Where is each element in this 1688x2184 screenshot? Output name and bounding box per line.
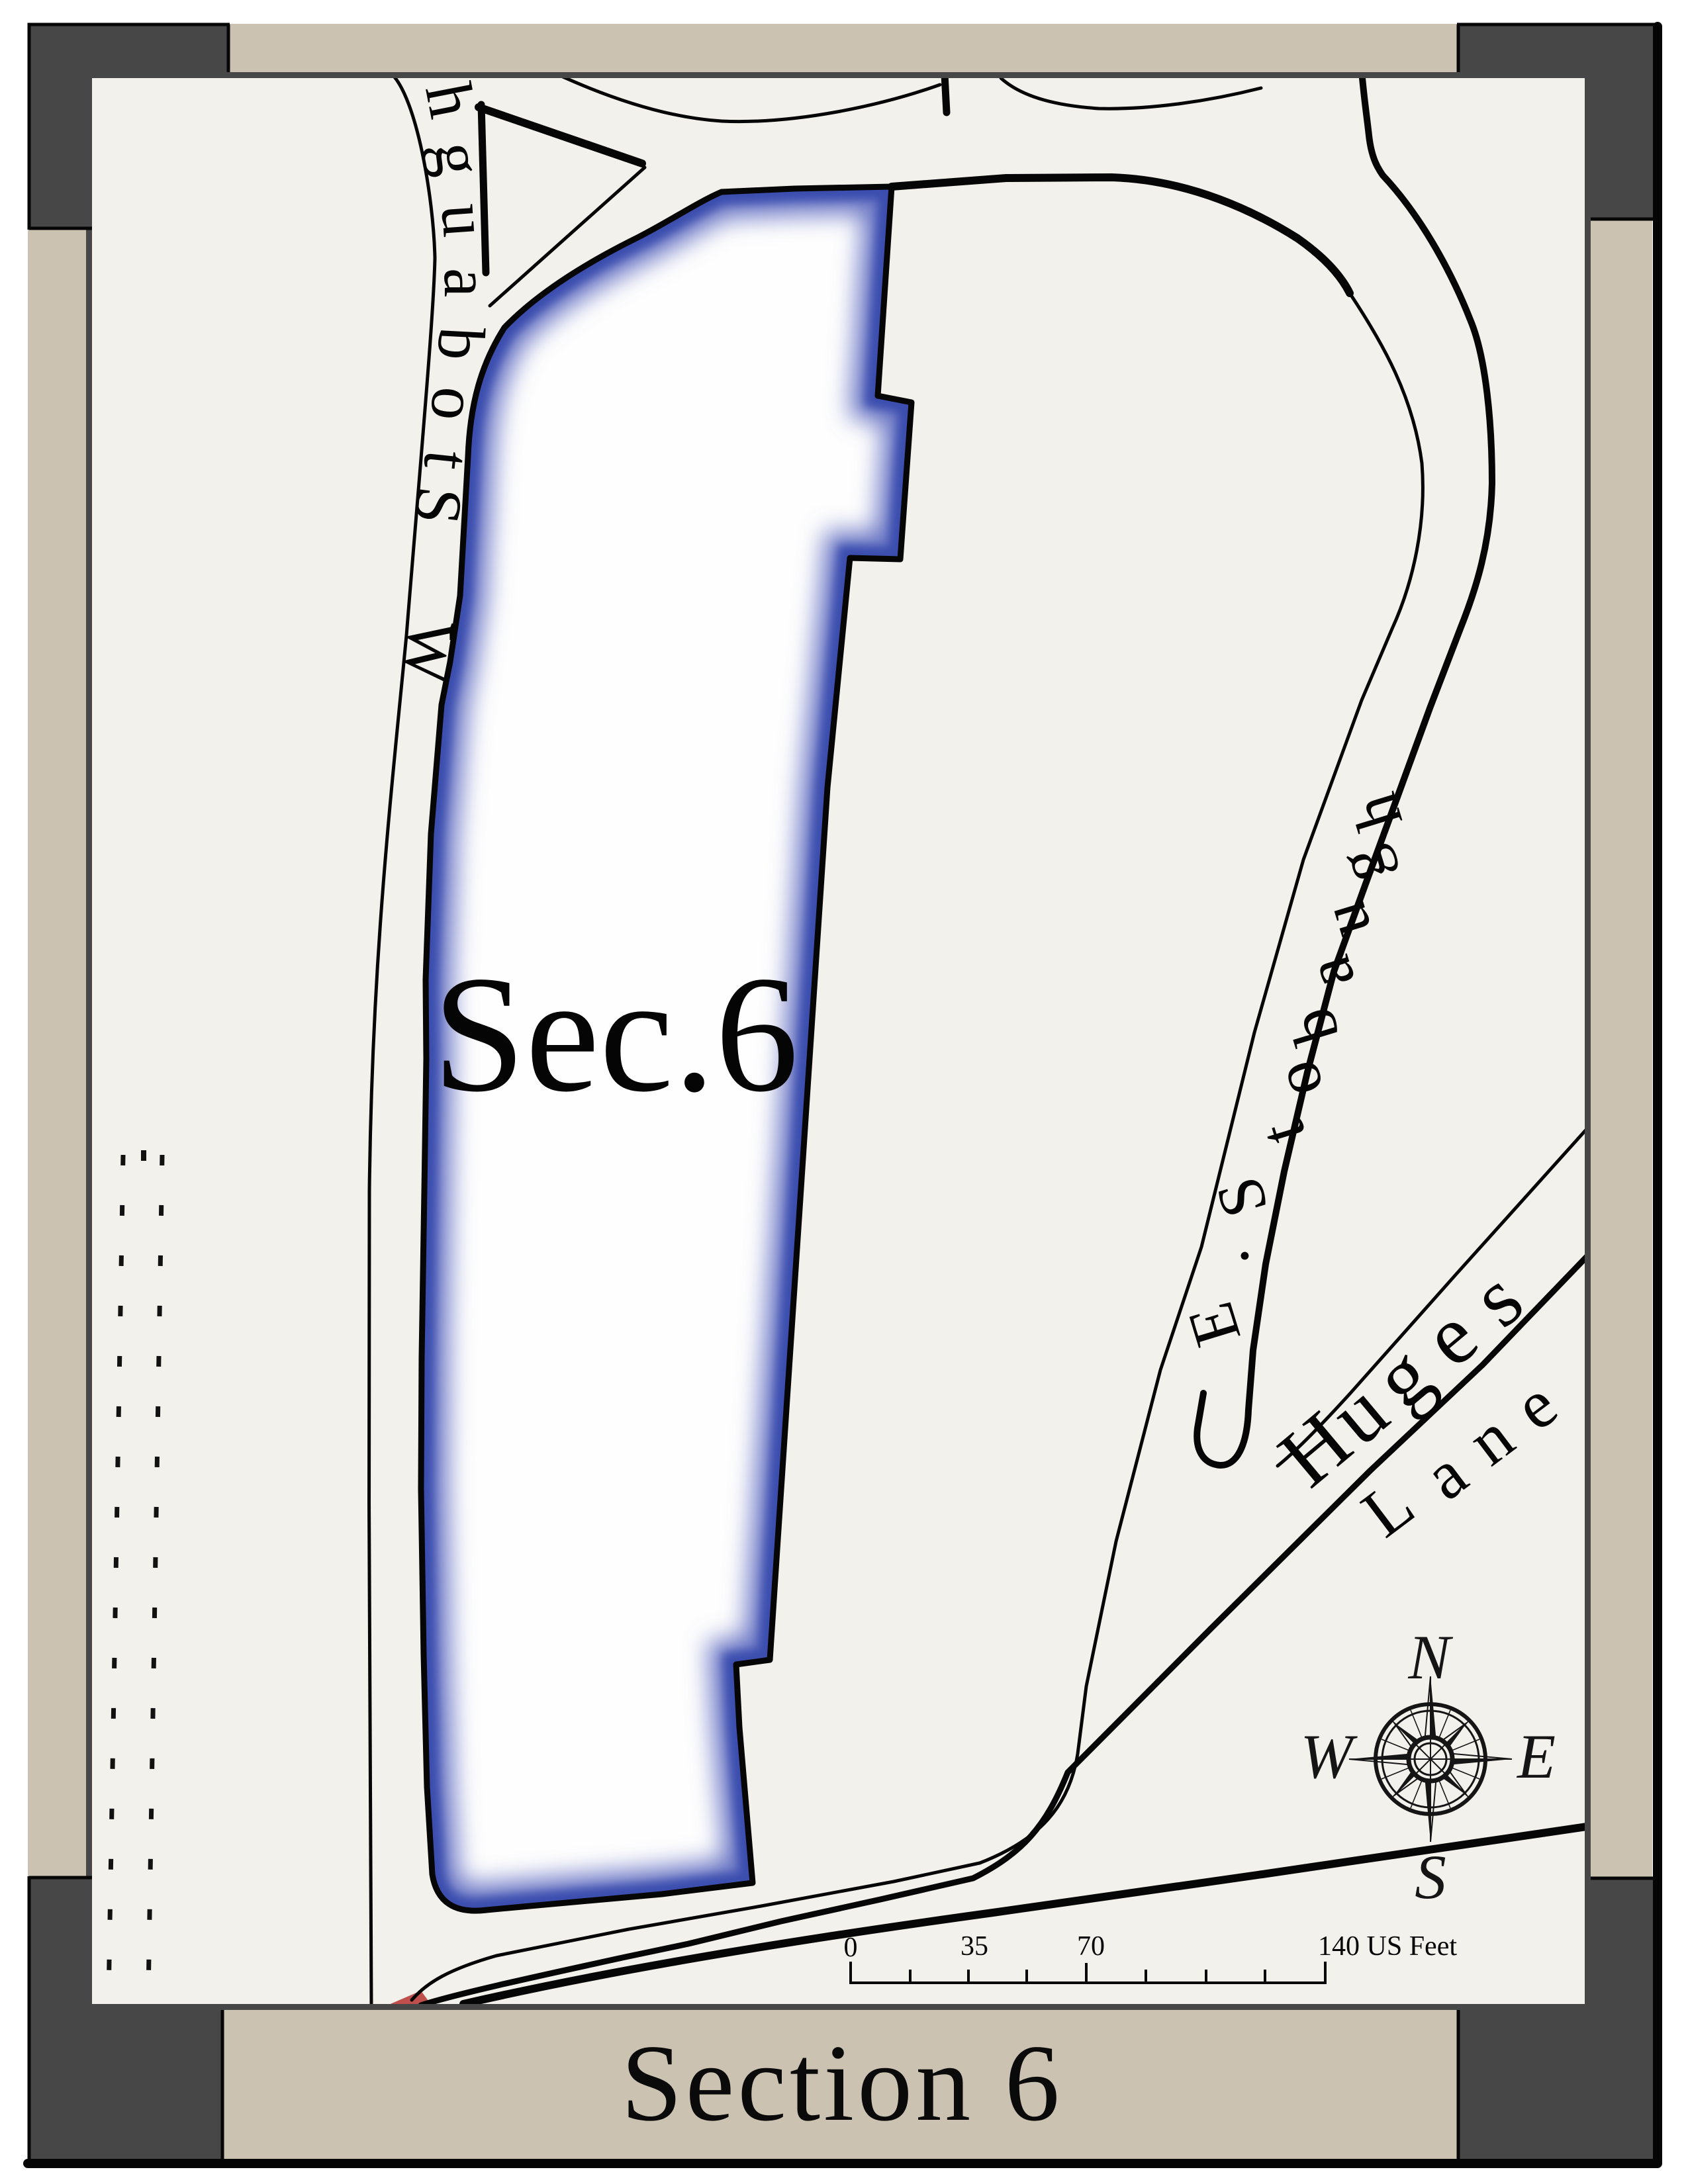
svg-text:o: o [416, 385, 492, 424]
svg-text:Section 6: Section 6 [621, 2022, 1062, 2144]
svg-text:35: 35 [961, 1931, 988, 1962]
svg-text:0: 0 [844, 1933, 858, 1963]
svg-text:W: W [1300, 1721, 1358, 1792]
svg-text:a: a [430, 268, 504, 297]
svg-text:Sec.6: Sec.6 [433, 941, 799, 1126]
svg-text:b: b [424, 325, 498, 362]
svg-text:W: W [389, 617, 469, 688]
svg-text:70: 70 [1077, 1931, 1105, 1962]
svg-text:S: S [1415, 1842, 1446, 1912]
svg-text:N: N [1407, 1622, 1453, 1692]
svg-text:u: u [427, 201, 502, 240]
svg-text:140 US Feet: 140 US Feet [1318, 1931, 1457, 1962]
svg-text:E: E [1516, 1721, 1556, 1792]
